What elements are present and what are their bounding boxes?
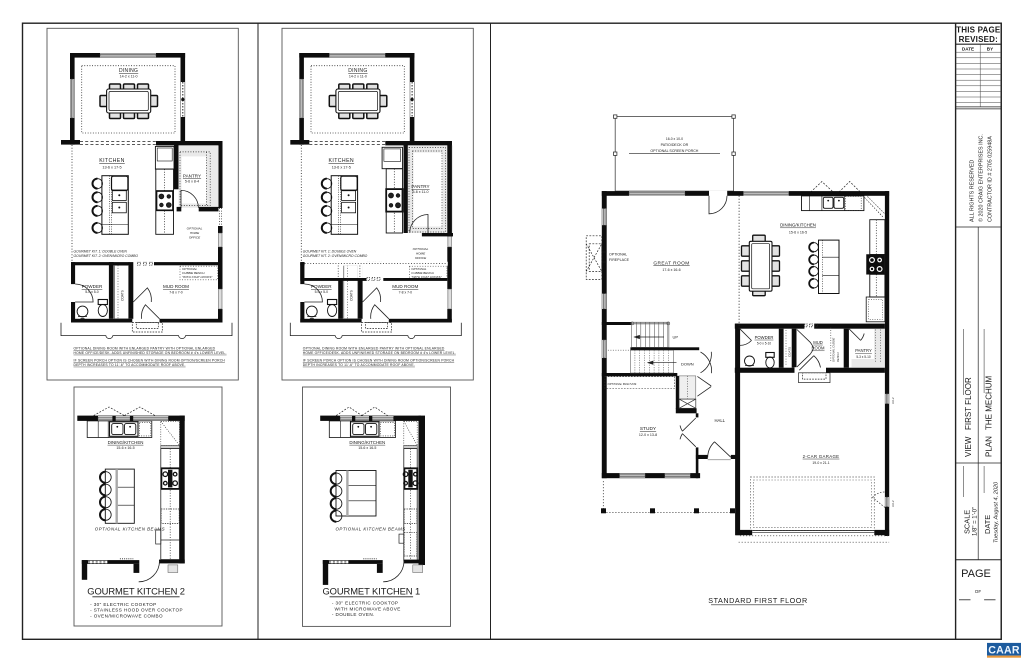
svg-text:HOME: HOME (190, 231, 200, 235)
svg-text:5-0 x 5-10: 5-0 x 5-10 (757, 342, 772, 346)
svg-text:HALL: HALL (715, 418, 726, 423)
svg-text:OF: OF (975, 589, 982, 594)
svg-text:- DOUBLE OVEN.: - DOUBLE OVEN. (332, 612, 375, 617)
svg-text:PANTRY: PANTRY (855, 348, 872, 353)
svg-text:15-6 x 16-5: 15-6 x 16-5 (116, 446, 134, 450)
svg-text:- 30" ELECTRIC COOKTOP: - 30" ELECTRIC COOKTOP (90, 602, 157, 607)
svg-text:COATS: COATS (788, 347, 792, 357)
svg-text:ROOM: ROOM (811, 346, 825, 351)
svg-text:5-6 x 11-0: 5-6 x 11-0 (413, 190, 429, 194)
svg-text:19-0 x 21-1: 19-0 x 21-1 (812, 461, 829, 465)
svg-text:GOURMET KITCHEN 2: GOURMET KITCHEN 2 (87, 586, 185, 597)
svg-text:GREAT ROOM: GREAT ROOM (653, 261, 689, 267)
svg-text:DINING/KITCHEN: DINING/KITCHEN (108, 440, 144, 445)
svg-text:- OVEN/MICROWAVE COMBO: - OVEN/MICROWAVE COMBO (90, 613, 163, 618)
svg-text:WITH MICROWAVE ABOVE: WITH MICROWAVE ABOVE (335, 606, 401, 611)
svg-text:CONTRACTOR ID # 2705 025948A: CONTRACTOR ID # 2705 025948A (988, 136, 994, 222)
svg-text:OPTIONAL KITCHEN BEAMS: OPTIONAL KITCHEN BEAMS (336, 527, 406, 532)
svg-text:OFFICE: OFFICE (415, 256, 427, 260)
svg-text:GOURMET KITCHEN 1: GOURMET KITCHEN 1 (322, 586, 420, 597)
svg-text:VIEW: VIEW (964, 436, 973, 457)
svg-text:DOWN: DOWN (681, 361, 694, 366)
svg-text:OPTIONAL: OPTIONAL (413, 247, 429, 251)
svg-text:MUD: MUD (813, 340, 823, 345)
svg-text:DATE: DATE (983, 515, 992, 534)
svg-text:3-0-2: 3-0-2 (891, 500, 895, 507)
svg-text:OPTIONAL CUBBIE: OPTIONAL CUBBIE (832, 337, 836, 362)
svg-text:15-6 x 16-5: 15-6 x 16-5 (789, 230, 807, 234)
svg-text:POWDER: POWDER (755, 335, 774, 340)
svg-text:OFFICE: OFFICE (189, 236, 201, 240)
svg-text:SCALE: SCALE (963, 510, 972, 534)
svg-text:HOME: HOME (416, 251, 426, 255)
svg-text:OPTIONAL: OPTIONAL (187, 227, 203, 231)
svg-text:OPTIONAL SCREEN PORCH: OPTIONAL SCREEN PORCH (650, 149, 698, 153)
svg-text:Tuesday, August 4, 2020: Tuesday, August 4, 2020 (994, 481, 1000, 543)
svg-text:PANTRY: PANTRY (183, 174, 201, 179)
svg-text:OPTIONAL: OPTIONAL (609, 253, 627, 257)
svg-text:PLAN: PLAN (985, 436, 994, 457)
svg-text:BENCH: BENCH (836, 353, 840, 362)
svg-text:STANDARD FIRST FLOOR: STANDARD FIRST FLOOR (708, 596, 807, 605)
svg-text:DINING/KITCHEN: DINING/KITCHEN (349, 440, 385, 445)
svg-text:16-0 x 10-0: 16-0 x 10-0 (666, 137, 683, 141)
svg-text:PANTRY: PANTRY (411, 184, 429, 189)
svg-text:PATIO/DECK OR: PATIO/DECK OR (661, 143, 689, 147)
svg-text:THIS PAGE: THIS PAGE (956, 25, 1001, 34)
svg-text:© 2020 CRAIG ENTERPRISES INC.: © 2020 CRAIG ENTERPRISES INC. (978, 134, 985, 222)
svg-text:ALL RIGHTS RESERVED: ALL RIGHTS RESERVED (970, 160, 976, 222)
svg-text:OPTIONAL KITCHEN BEAMS: OPTIONAL KITCHEN BEAMS (95, 527, 165, 532)
svg-text:2-CAR GARAGE: 2-CAR GARAGE (803, 454, 840, 459)
svg-text:FIREPLACE: FIREPLACE (609, 258, 630, 262)
svg-text:17-6 x 16-6: 17-6 x 16-6 (662, 268, 680, 272)
svg-text:OPTIONAL BUILT-INS: OPTIONAL BUILT-INS (608, 382, 637, 386)
svg-text:DINING/KITCHEN: DINING/KITCHEN (780, 223, 816, 228)
svg-text:3-0-2: 3-0-2 (891, 397, 895, 404)
svg-text:REVISED:: REVISED: (959, 35, 998, 44)
svg-text:- STAINLESS HOOD OVER COOKTOP: - STAINLESS HOOD OVER COOKTOP (90, 608, 183, 613)
svg-text:15-6 x 16-5: 15-6 x 16-5 (358, 446, 376, 450)
svg-text:STUDY: STUDY (640, 426, 657, 432)
svg-text:12-0 x 13-8: 12-0 x 13-8 (639, 433, 657, 437)
svg-text:BY: BY (987, 46, 993, 51)
svg-text:UP: UP (673, 335, 679, 340)
svg-text:5-3 x 5-10: 5-3 x 5-10 (856, 355, 871, 359)
svg-text:5-6 x 8-4: 5-6 x 8-4 (185, 180, 199, 184)
svg-text:1/8" = 1'-0": 1/8" = 1'-0" (973, 507, 979, 536)
svg-text:DATE: DATE (962, 46, 974, 51)
svg-text:- 30" ELECTRIC COOKTOP: - 30" ELECTRIC COOKTOP (332, 601, 399, 606)
svg-text:PAGE: PAGE (961, 568, 991, 580)
svg-text:FIRST FLOOR: FIRST FLOOR (964, 377, 973, 430)
svg-text:THE MECHUM: THE MECHUM (985, 375, 994, 430)
svg-text:CAAR: CAAR (988, 644, 1020, 656)
